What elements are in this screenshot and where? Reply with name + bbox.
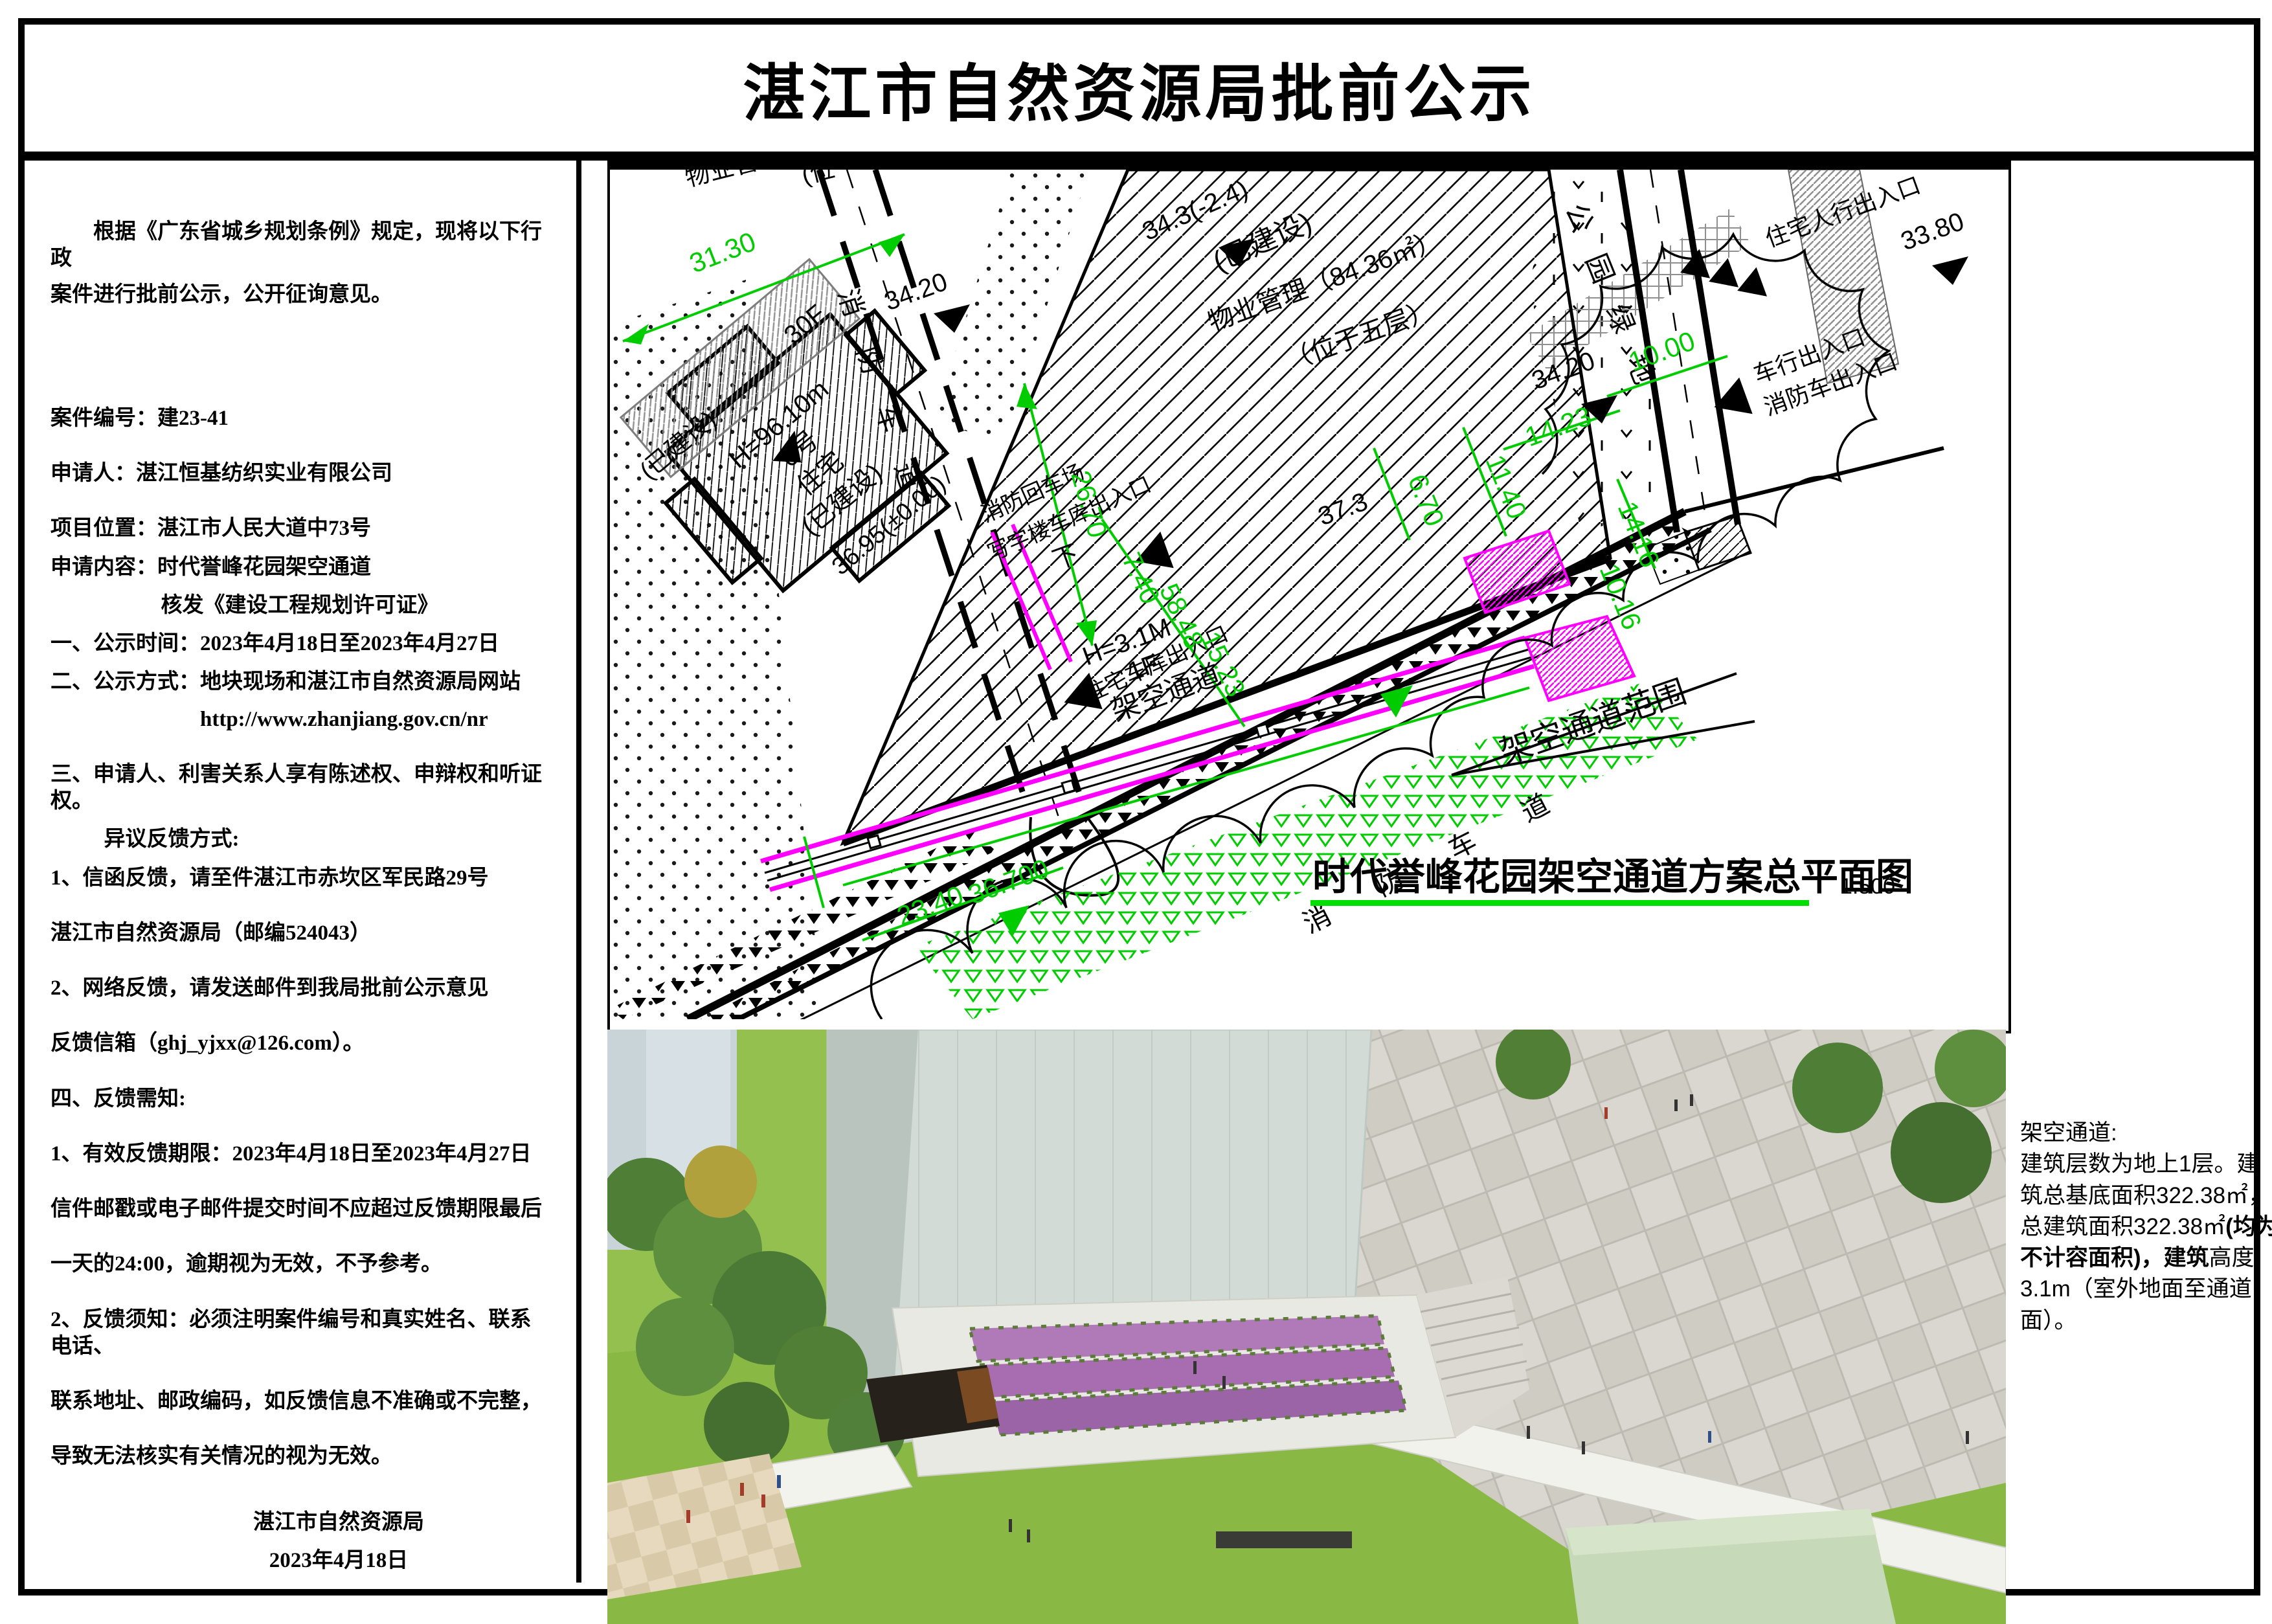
notice-feedback1-2: 湛江市自然资源局（邮编524043）: [51, 920, 549, 947]
rendering-image: [607, 1030, 2006, 1624]
notice-note2-1: 2、反馈须知：必须注明案件编号和真实姓名、联系电话、: [51, 1307, 549, 1360]
dim-31-30: 31.30: [685, 226, 759, 279]
side-note-title: 架空通道:: [2020, 1118, 2272, 1149]
notice-item1: 一、公示时间：2023年4月18日至2023年4月27日: [51, 631, 549, 657]
notice-item3-1: 三、申请人、利害关系人享有陈述权、申辩权和听证权。: [51, 761, 549, 815]
wall-slot: [1216, 1531, 1352, 1548]
notice-note2-3: 导致无法核实有关情况的视为无效。: [51, 1443, 549, 1470]
caption-underline: [1310, 900, 1809, 906]
notice-item4: 四、反馈需知:: [51, 1086, 549, 1112]
label-top-partial-b: (位: [799, 170, 837, 190]
low-building: [1566, 1509, 1896, 1624]
notice-note1-1: 1、有效反馈期限：2023年4月18日至2023年4月27日: [51, 1141, 549, 1167]
label-top-partial-a: 物业管: [682, 170, 761, 192]
notice-content: 申请内容：时代誉峰花园架空通道: [51, 554, 549, 581]
signature-block: 湛江市自然资源局 2023年4月18日: [51, 1509, 549, 1575]
site-plan-drawing: 物业管 (位 H=96.10m 6号 住宅 (已建设) 30F 36.95(±0…: [610, 170, 2003, 1019]
notice-note2-2: 联系地址、邮政编码，如反馈信息不准确或不完整，: [51, 1388, 549, 1415]
rendering-panel: [607, 1030, 2006, 1624]
notice-feedback2-1: 2、网络反馈，请发送邮件到我局批前公示意见: [51, 975, 549, 1002]
side-note-seg3: 建筑: [2164, 1245, 2209, 1270]
notice-location: 项目位置：湛江市人民大道中73号: [51, 515, 549, 542]
page-title: 湛江市自然资源局批前公示: [743, 43, 1536, 133]
notice-feedback2-2: 反馈信箱（ghj_yjxx@126.com）。: [51, 1030, 549, 1057]
site-plan-panel: 物业管 (位 H=96.10m 6号 住宅 (已建设) 30F 36.95(±0…: [607, 161, 2011, 1033]
notice-applicant: 申请人：湛江恒基纺织实业有限公司: [51, 460, 549, 487]
label-level-3420a: 34.20: [881, 267, 951, 317]
notice-item2-url: http://www.zhanjiang.gov.cn/nr: [51, 706, 549, 733]
notice-intro-2: 案件进行批前公示，公开征询意见。: [51, 282, 549, 308]
notice-note1-3: 一天的24:00，逾期视为无效，不予参考。: [51, 1251, 549, 1278]
plan-scale: 1:500: [1840, 874, 1895, 899]
document-frame: 湛江市自然资源局批前公示 根据《广东省城乡规划条例》规定，现将以下行政 案件进行…: [18, 18, 2260, 1596]
plan-caption-group: 时代誉峰花园架空通道方案总平面图 1:500: [1310, 856, 1913, 906]
notice-note1-2: 信件邮戳或电子邮件提交时间不应超过反馈期限最后: [51, 1196, 549, 1223]
notice-intro-1: 根据《广东省城乡规划条例》规定，现将以下行政: [51, 219, 549, 273]
notice-item2: 二、公示方式：地块现场和湛江市自然资源局网站: [51, 669, 549, 695]
side-note-body: 建筑层数为地上1层。建筑总基底面积322.38㎡，总建筑面积322.38㎡(均为…: [2020, 1149, 2272, 1336]
signature-org: 湛江市自然资源局: [128, 1509, 549, 1536]
notice-permit: 核发《建设工程规划许可证》: [51, 592, 549, 619]
signature-date: 2023年4月18日: [128, 1548, 549, 1574]
notice-text-panel: 根据《广东省城乡规划条例》规定，现将以下行政 案件进行批前公示，公开征询意见。 …: [51, 219, 549, 1586]
notice-item3-2: 异议反馈方式:: [51, 826, 549, 853]
column-divider: [576, 161, 581, 1583]
title-band: 湛江市自然资源局批前公示: [25, 25, 2254, 161]
notice-feedback1-1: 1、信函反馈，请至件湛江市赤坎区军民路29号: [51, 865, 549, 892]
side-note: 架空通道: 建筑层数为地上1层。建筑总基底面积322.38㎡，总建筑面积322.…: [2020, 1118, 2272, 1336]
plan-caption: 时代誉峰花园架空通道方案总平面图: [1312, 856, 1913, 898]
notice-case-no: 案件编号：建23-41: [51, 405, 549, 432]
label-level-3380: 33.80: [1897, 207, 1968, 256]
